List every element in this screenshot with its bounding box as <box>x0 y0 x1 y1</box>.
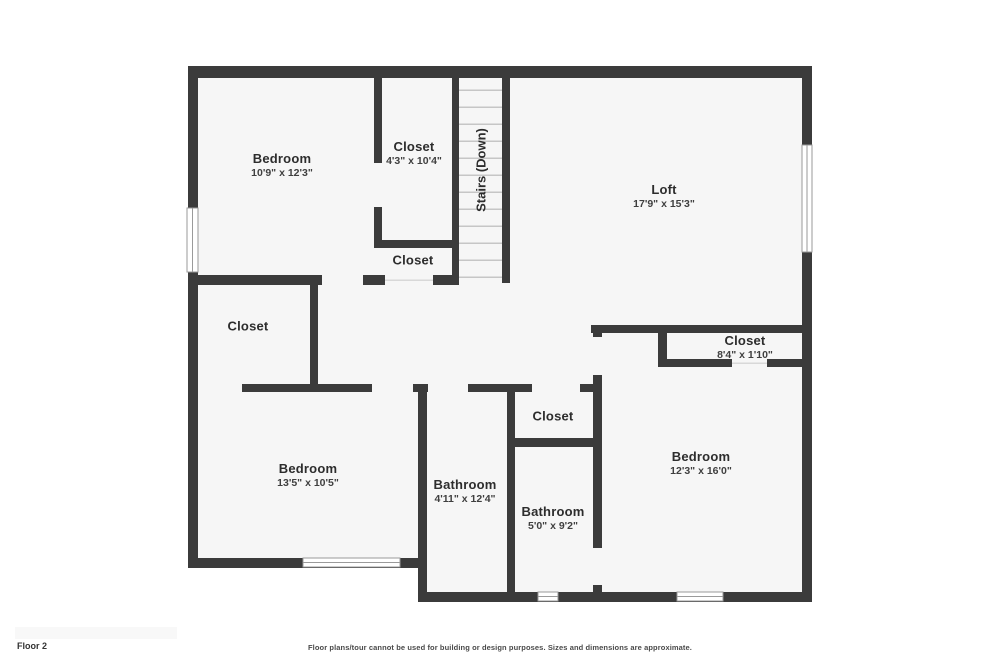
room-label-closet-right: Closet 8'4" x 1'10" <box>717 333 773 361</box>
room-label-loft: Loft 17'9" x 15'3" <box>633 182 695 210</box>
room-name: Bedroom <box>670 449 732 464</box>
room-label-bathroom-2: Bathroom 5'0" x 9'2" <box>522 504 585 532</box>
room-name: Bathroom <box>522 504 585 519</box>
footer-logo-box <box>15 627 177 639</box>
room-name: Loft <box>633 182 695 197</box>
room-name: Bathroom <box>434 477 497 492</box>
room-dims: 8'4" x 1'10" <box>717 349 773 361</box>
room-label-closet-small: Closet <box>393 252 434 267</box>
window-icon <box>677 592 723 601</box>
room-label-closet-center: Closet <box>533 408 574 423</box>
room-dims: 5'0" x 9'2" <box>522 520 585 532</box>
floorplan-canvas <box>0 0 1000 667</box>
room-label-bedroom-right: Bedroom 12'3" x 16'0" <box>670 449 732 477</box>
window-icon <box>538 592 558 601</box>
room-label-bedroom-top-left: Bedroom 10'9" x 12'3" <box>251 151 313 179</box>
room-dims: 13'5" x 10'5" <box>277 477 339 489</box>
room-name: Closet <box>533 408 574 423</box>
room-dims: 10'9" x 12'3" <box>251 167 313 179</box>
room-label-closet-mid-left: Closet <box>228 318 269 333</box>
room-label-bedroom-bottom-left: Bedroom 13'5" x 10'5" <box>277 461 339 489</box>
room-dims: 4'3" x 10'4" <box>386 155 442 167</box>
room-dims: 12'3" x 16'0" <box>670 465 732 477</box>
room-name: Closet <box>228 318 269 333</box>
room-label-closet-tall: Closet 4'3" x 10'4" <box>386 139 442 167</box>
room-name: Closet <box>717 333 773 348</box>
footer-disclaimer: Floor plans/tour cannot be used for buil… <box>0 643 1000 652</box>
room-label-bathroom-1: Bathroom 4'11" x 12'4" <box>434 477 497 505</box>
room-dims: 17'9" x 15'3" <box>633 198 695 210</box>
room-dims: 4'11" x 12'4" <box>434 493 497 505</box>
stairs-label: Stairs (Down) <box>474 128 489 212</box>
room-name: Bedroom <box>277 461 339 476</box>
room-name: Closet <box>386 139 442 154</box>
window-icon <box>187 208 198 272</box>
window-icon <box>802 145 812 252</box>
room-name: Closet <box>393 252 434 267</box>
window-icon <box>303 558 400 567</box>
room-name: Bedroom <box>251 151 313 166</box>
floorplan-page: Bedroom 10'9" x 12'3" Closet 4'3" x 10'4… <box>0 0 1000 667</box>
